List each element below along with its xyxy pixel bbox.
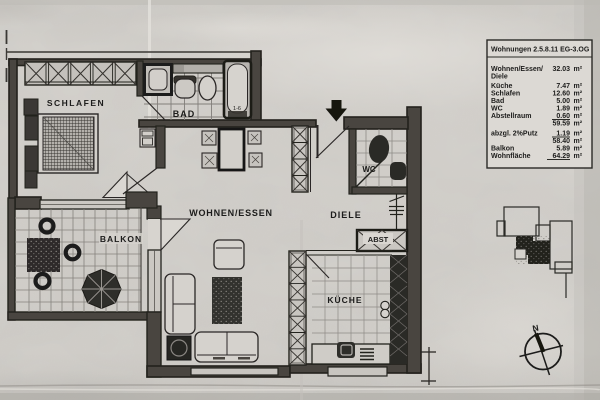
svg-text:m²: m² <box>574 98 583 105</box>
svg-text:Abstellraum: Abstellraum <box>491 113 531 120</box>
svg-text:5.89: 5.89 <box>556 146 570 153</box>
svg-text:m²: m² <box>574 146 583 153</box>
svg-text:Bad: Bad <box>491 98 504 105</box>
svg-text:1.89: 1.89 <box>556 106 570 113</box>
svg-text:m²: m² <box>574 121 583 128</box>
svg-text:m²: m² <box>574 83 583 90</box>
svg-text:ABST: ABST <box>368 235 389 244</box>
svg-text:59.59: 59.59 <box>552 121 570 128</box>
svg-text:m²: m² <box>574 138 583 145</box>
svg-text:0.60: 0.60 <box>556 113 570 120</box>
svg-text:BAD: BAD <box>173 109 196 119</box>
svg-text:32.03: 32.03 <box>552 66 570 73</box>
svg-text:Wohnen/Essen/: Wohnen/Essen/ <box>491 66 543 73</box>
svg-text:Diele: Diele <box>491 74 508 81</box>
svg-text:WOHNEN/ESSEN: WOHNEN/ESSEN <box>189 208 273 218</box>
svg-text:7.47: 7.47 <box>556 83 570 90</box>
svg-text:BALKON: BALKON <box>100 234 142 244</box>
svg-text:Küche: Küche <box>491 83 513 90</box>
svg-text:64.29: 64.29 <box>552 153 570 160</box>
svg-text:5.00: 5.00 <box>556 98 570 105</box>
svg-text:DIELE: DIELE <box>330 210 362 220</box>
svg-text:1.19: 1.19 <box>556 131 570 138</box>
svg-text:m²: m² <box>574 113 583 120</box>
svg-text:58.40: 58.40 <box>552 138 570 145</box>
svg-text:m²: m² <box>574 131 583 138</box>
svg-text:Balkon: Balkon <box>491 146 514 153</box>
svg-text:12.60: 12.60 <box>552 91 570 98</box>
svg-text:abzgl. 2%Putz: abzgl. 2%Putz <box>491 131 538 138</box>
svg-text:m²: m² <box>574 66 583 73</box>
svg-text:WC: WC <box>491 106 503 113</box>
svg-text:Wohnfläche: Wohnfläche <box>491 153 531 160</box>
svg-text:Schlafen: Schlafen <box>491 91 520 98</box>
svg-text:Wohnungen 2.5.8.11 EG-3.OG: Wohnungen 2.5.8.11 EG-3.OG <box>491 47 590 54</box>
svg-text:m²: m² <box>574 153 583 160</box>
svg-text:m²: m² <box>574 106 583 113</box>
svg-text:SCHLAFEN: SCHLAFEN <box>47 98 105 108</box>
svg-text:m²: m² <box>574 91 583 98</box>
svg-text:KÜCHE: KÜCHE <box>327 295 362 305</box>
